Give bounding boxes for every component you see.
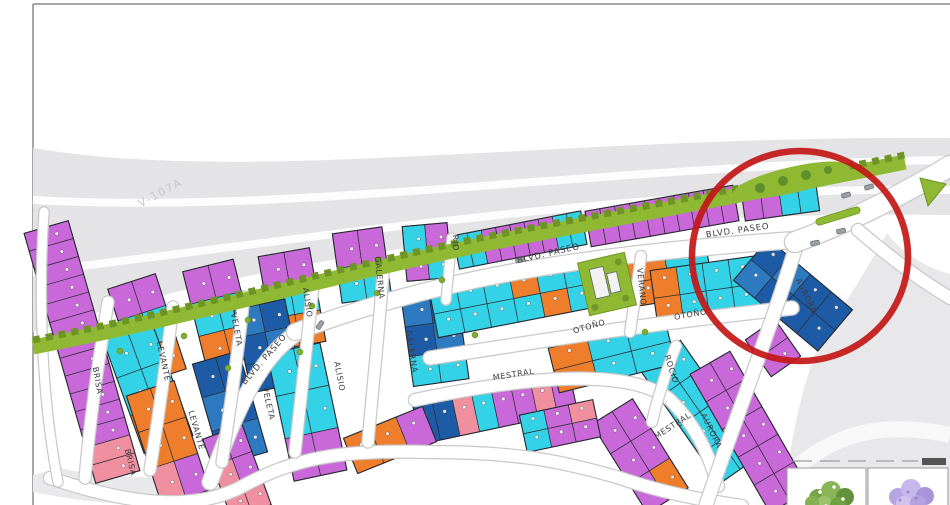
street-name-label: RIO (451, 234, 461, 251)
tree-icon (181, 333, 187, 339)
site-plan-map: V-107A (0, 0, 950, 505)
lot-cell (702, 260, 732, 291)
legend-tag (922, 458, 946, 465)
tree-icon (225, 365, 231, 371)
tree-icon (472, 332, 478, 338)
tree-icon (439, 277, 445, 283)
lot-number-dot (417, 237, 421, 241)
lot-cell (650, 267, 680, 298)
tree-icon (297, 349, 303, 355)
lot-number-dot (439, 235, 443, 239)
lot-block (343, 406, 436, 473)
tree-icon (245, 317, 251, 323)
site-plan-screenshot: V-107A (0, 0, 950, 505)
tree-icon (642, 329, 648, 335)
street-name-label: VELETA (260, 386, 276, 421)
street-name-label: ALISIO (332, 361, 347, 392)
tree-icon (117, 348, 123, 354)
